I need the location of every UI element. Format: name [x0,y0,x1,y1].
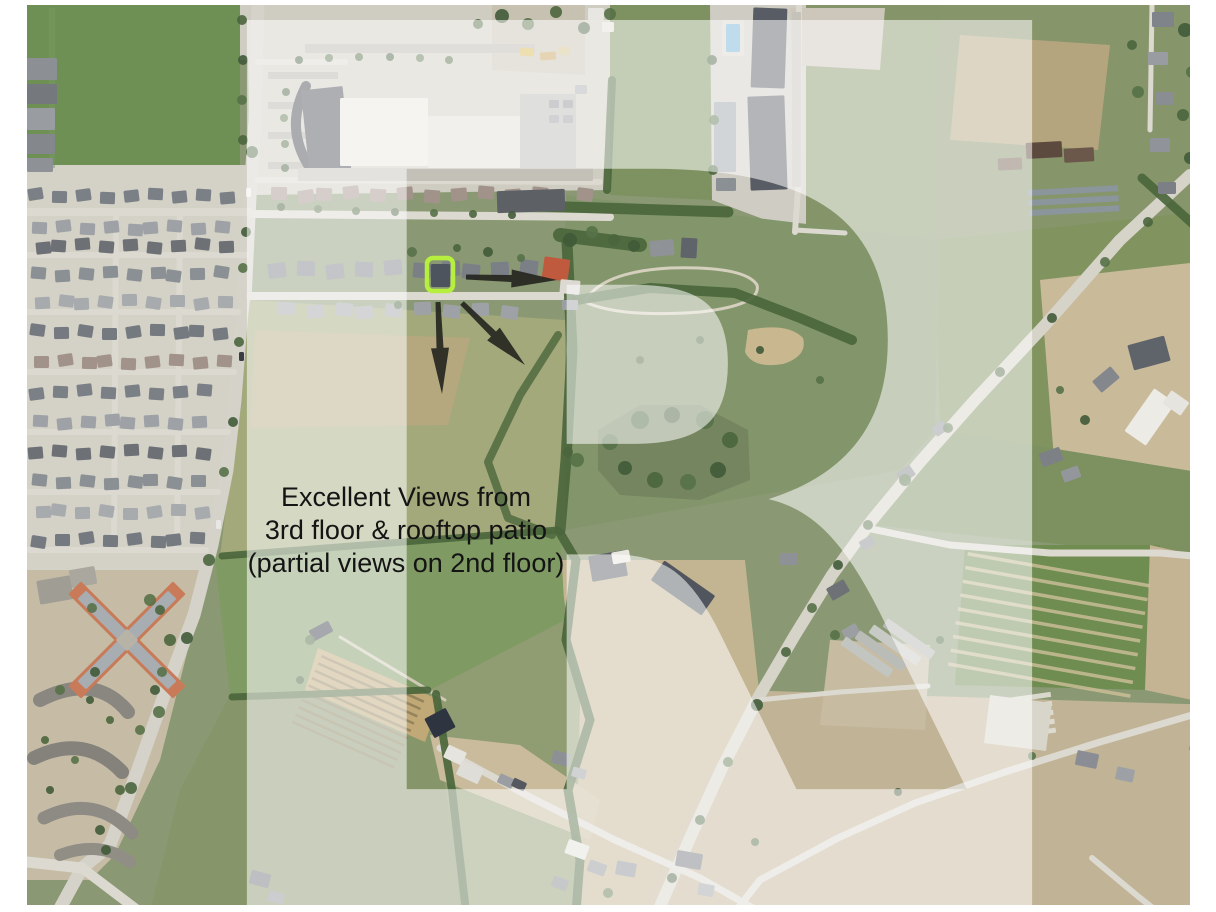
house-roof [146,241,162,255]
house-roof [99,445,115,459]
building-roof [792,12,801,187]
house-roof [127,475,144,489]
house-roof [143,221,159,234]
house-roof [124,444,140,457]
house-roof [396,186,413,201]
building-roof [27,108,55,130]
building-roof [549,115,559,123]
house-roof [29,323,46,337]
house-roof [75,188,92,202]
house-roof [151,267,166,280]
house-roof [191,222,207,235]
building-roof [1158,182,1176,194]
house-roof [354,261,373,277]
house-roof [76,447,92,460]
house-roof [383,259,402,276]
house-roof [169,354,185,367]
house-roof [148,188,164,201]
building-roof [588,8,604,20]
house-roof [297,189,315,204]
house-roof [78,267,94,281]
house-roof [27,187,44,201]
house-roof [442,304,460,319]
house-roof [173,385,189,398]
building-roof [726,24,740,52]
house-roof [121,358,136,371]
house-roof [171,504,186,516]
house-roof [325,263,344,280]
house-roof [125,325,142,339]
house-roof [576,187,593,202]
house-roof [82,357,97,369]
building-roof [540,51,557,60]
house-roof [167,417,183,431]
house-roof [100,192,115,205]
house-roof [31,266,47,279]
house-roof [370,189,387,203]
house-roof [103,535,118,547]
house-roof [212,327,228,341]
house-roof [192,416,208,429]
house-roof [306,304,324,318]
house-roof [170,295,185,307]
building-roof [1150,138,1170,152]
house-roof [52,191,67,203]
building-roof [563,100,573,108]
house-roof [214,220,230,234]
house-roof [55,269,71,282]
building-roof [340,98,428,166]
house-roof [190,268,205,280]
house-roof [56,417,72,431]
house-roof [81,415,97,428]
house-roof [193,297,210,311]
building-roof [27,84,57,104]
building-roof [520,47,535,56]
house-roof [171,190,187,204]
house-roof [28,387,45,401]
house-roof [33,415,49,428]
building-roof [649,239,674,257]
building-roof [562,300,578,310]
house-roof [297,261,316,277]
house-roof [124,384,140,398]
house-roof [30,535,47,549]
house-roof [316,188,332,202]
house-roof [424,189,441,203]
aerial-photo: R REALTOR® Excellent Views from 3rd floo… [27,5,1190,905]
house-roof [120,416,136,429]
house-roof [34,356,49,368]
house-roof [195,447,212,461]
building-roof [239,352,244,361]
house-roof [165,533,181,547]
house-roof [477,185,494,199]
building-roof [575,85,587,94]
building-roof [559,279,580,295]
house-roof [500,305,519,320]
house-roof [356,305,374,319]
house-roof [56,477,72,490]
house-roof [171,240,187,253]
house-roof [35,241,51,255]
house-roof [414,302,432,316]
building-roof [497,189,566,213]
house-roof [197,383,213,396]
building-roof [998,157,1023,170]
views-caption-line-2: 3rd floor & rooftop patio [214,514,598,547]
house-roof [77,324,94,338]
house-roof [79,474,95,488]
house-roof [96,354,113,368]
house-roof [97,295,114,309]
house-roof [32,222,47,235]
house-roof [126,268,142,282]
house-roof [196,188,212,201]
house-roof [101,387,117,400]
house-roof [219,241,234,254]
house-roof [28,446,44,459]
house-roof [149,387,165,400]
building-roof [1026,141,1063,159]
house-roof [75,507,90,519]
house-roof [103,266,119,279]
building-roof [558,46,571,56]
house-roof [57,353,74,367]
building-roof [747,95,787,190]
building-roof [1148,52,1168,65]
house-roof [144,355,160,369]
building-roof [246,188,251,197]
house-roof [80,223,96,236]
house-roof [123,238,139,251]
building-roof [27,134,55,154]
house-roof [146,505,163,519]
building-roof [1152,12,1174,27]
house-roof [144,414,160,427]
house-roof [74,298,89,311]
house-roof [76,383,92,397]
house-roof [165,269,182,283]
house-roof [123,189,139,203]
building-roof [563,115,573,123]
house-roof [271,187,287,200]
house-roof [52,444,68,457]
house-roof [75,237,91,250]
house-roof [126,532,143,546]
house-roof [220,191,236,204]
house-roof [98,504,115,518]
house-roof [122,294,137,306]
building-roof [298,168,593,181]
house-roof [105,413,121,426]
house-roof [191,475,206,487]
house-roof [218,296,233,308]
house-roof [145,296,162,310]
house-roof [104,478,119,491]
views-caption: Excellent Views from 3rd floor & rooftop… [214,481,598,580]
house-roof [173,326,190,340]
building-roof [780,553,798,565]
house-roof [143,474,158,486]
building-roof [602,22,614,32]
building-roof [1064,147,1095,163]
building-roof [714,102,736,172]
house-roof [150,324,165,336]
house-roof [342,185,359,200]
house-roof [55,534,70,546]
house-roof [31,473,47,487]
house-roof [123,508,138,520]
views-caption-line-1: Excellent Views from [214,481,598,514]
house-roof [335,302,353,316]
house-roof [151,536,166,549]
house-roof [167,219,183,232]
page: R REALTOR® Excellent Views from 3rd floo… [0,0,1216,912]
house-roof [58,294,74,308]
house-roof [192,356,208,370]
house-roof [278,301,296,315]
house-roof [99,240,115,253]
house-roof [189,325,204,338]
house-roof [35,297,51,310]
building-roof [1156,92,1174,105]
building-roof [431,264,450,287]
house-roof [51,239,67,252]
house-roof [194,506,211,520]
views-caption-line-3: (partial views on 2nd floor) [214,547,598,580]
house-roof [102,328,117,340]
house-roof [166,476,183,490]
building-roof [716,178,736,191]
house-roof [55,219,71,233]
building-roof [27,58,57,80]
house-roof [450,187,467,201]
aerial-scene [27,5,1190,905]
house-roof [54,327,69,339]
house-roof [190,532,206,545]
building-roof [680,238,697,259]
house-roof [53,386,68,399]
house-roof [267,262,287,279]
building-roof [428,116,520,168]
house-roof [213,265,230,279]
house-roof [217,354,233,367]
house-roof [172,445,187,458]
house-roof [50,503,67,517]
house-roof [78,531,95,545]
building-roof [751,7,788,88]
house-roof [128,223,144,236]
house-roof [147,446,163,460]
house-roof [103,220,119,234]
house-roof [36,506,51,519]
house-roof [194,237,210,251]
building-roof [549,100,559,108]
building-roof [27,158,53,172]
